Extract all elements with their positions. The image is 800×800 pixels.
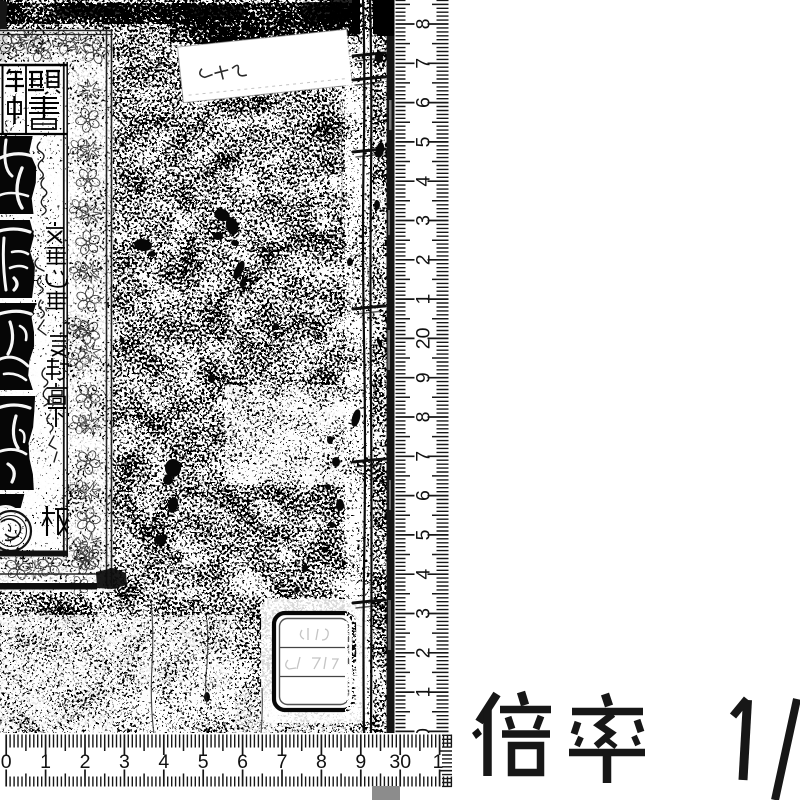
svg-text:5: 5: [198, 751, 209, 773]
svg-text:6: 6: [237, 751, 248, 773]
svg-text:8: 8: [316, 751, 327, 773]
svg-text:2: 2: [80, 751, 91, 773]
svg-text:30: 30: [389, 751, 411, 773]
svg-text:1: 1: [40, 751, 51, 773]
svg-text:3: 3: [119, 751, 130, 773]
svg-text:0: 0: [1, 751, 12, 773]
svg-text:7: 7: [277, 751, 288, 773]
svg-text:9: 9: [355, 751, 366, 773]
svg-text:4: 4: [158, 751, 169, 773]
svg-text:1: 1: [433, 751, 444, 773]
